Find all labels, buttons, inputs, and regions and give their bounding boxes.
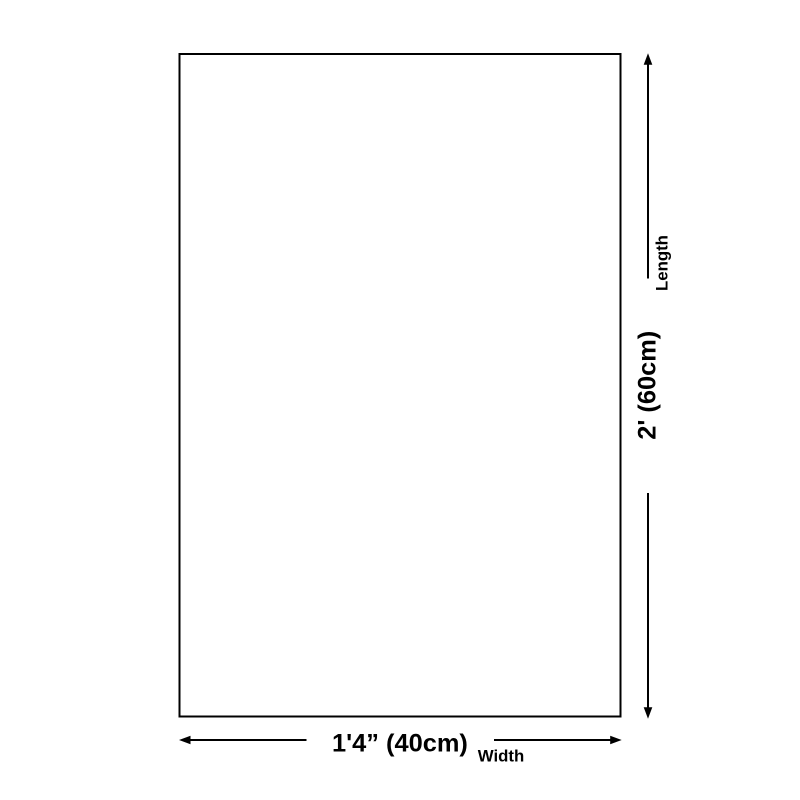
svg-text:1'4” (40cm): 1'4” (40cm) [332,729,468,757]
svg-text:Length: Length [652,235,671,291]
svg-text:2' (60cm): 2' (60cm) [634,331,662,440]
svg-text:Width: Width [478,747,524,766]
